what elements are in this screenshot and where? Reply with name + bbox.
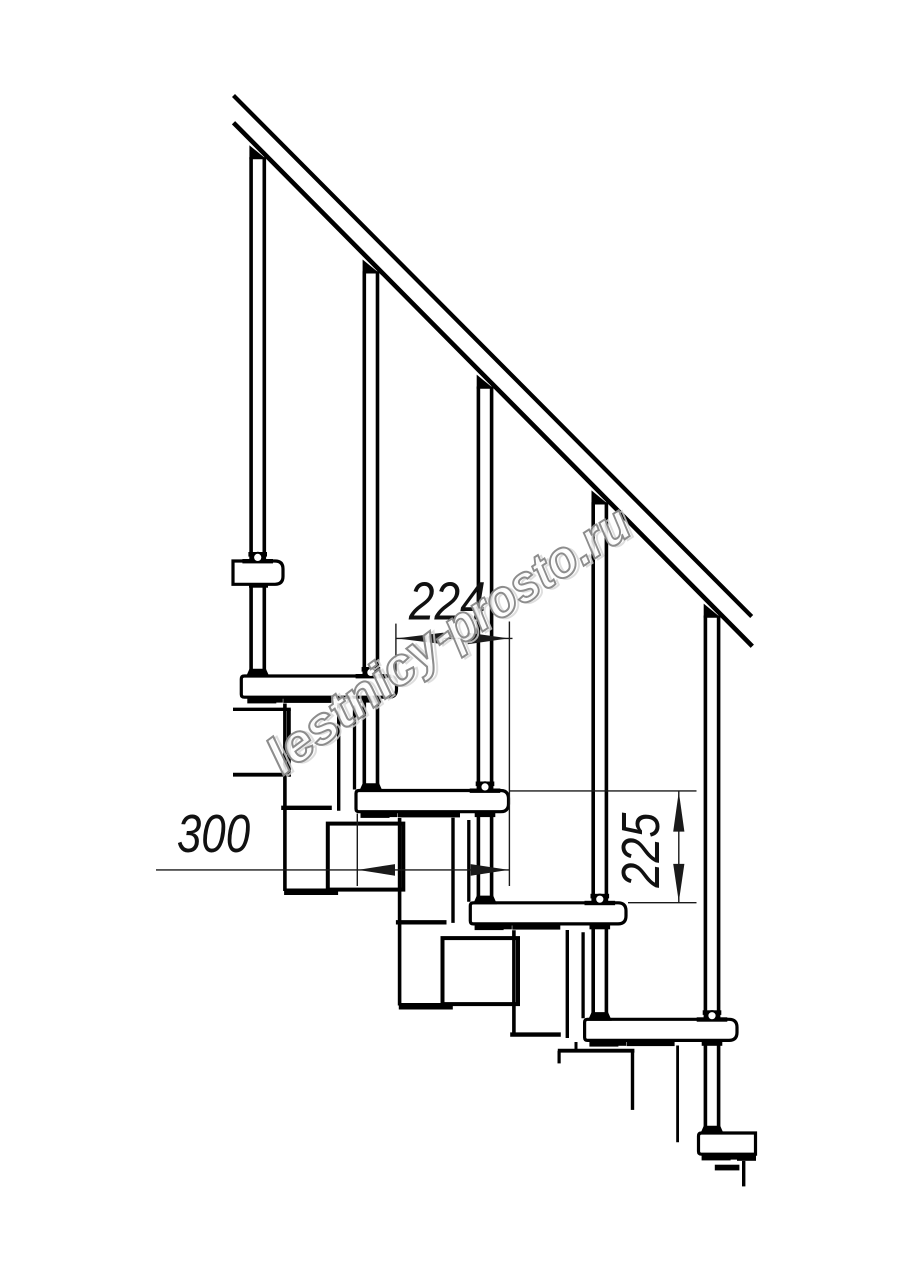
svg-text:300: 300 bbox=[177, 805, 250, 864]
svg-text:225: 225 bbox=[611, 812, 671, 888]
